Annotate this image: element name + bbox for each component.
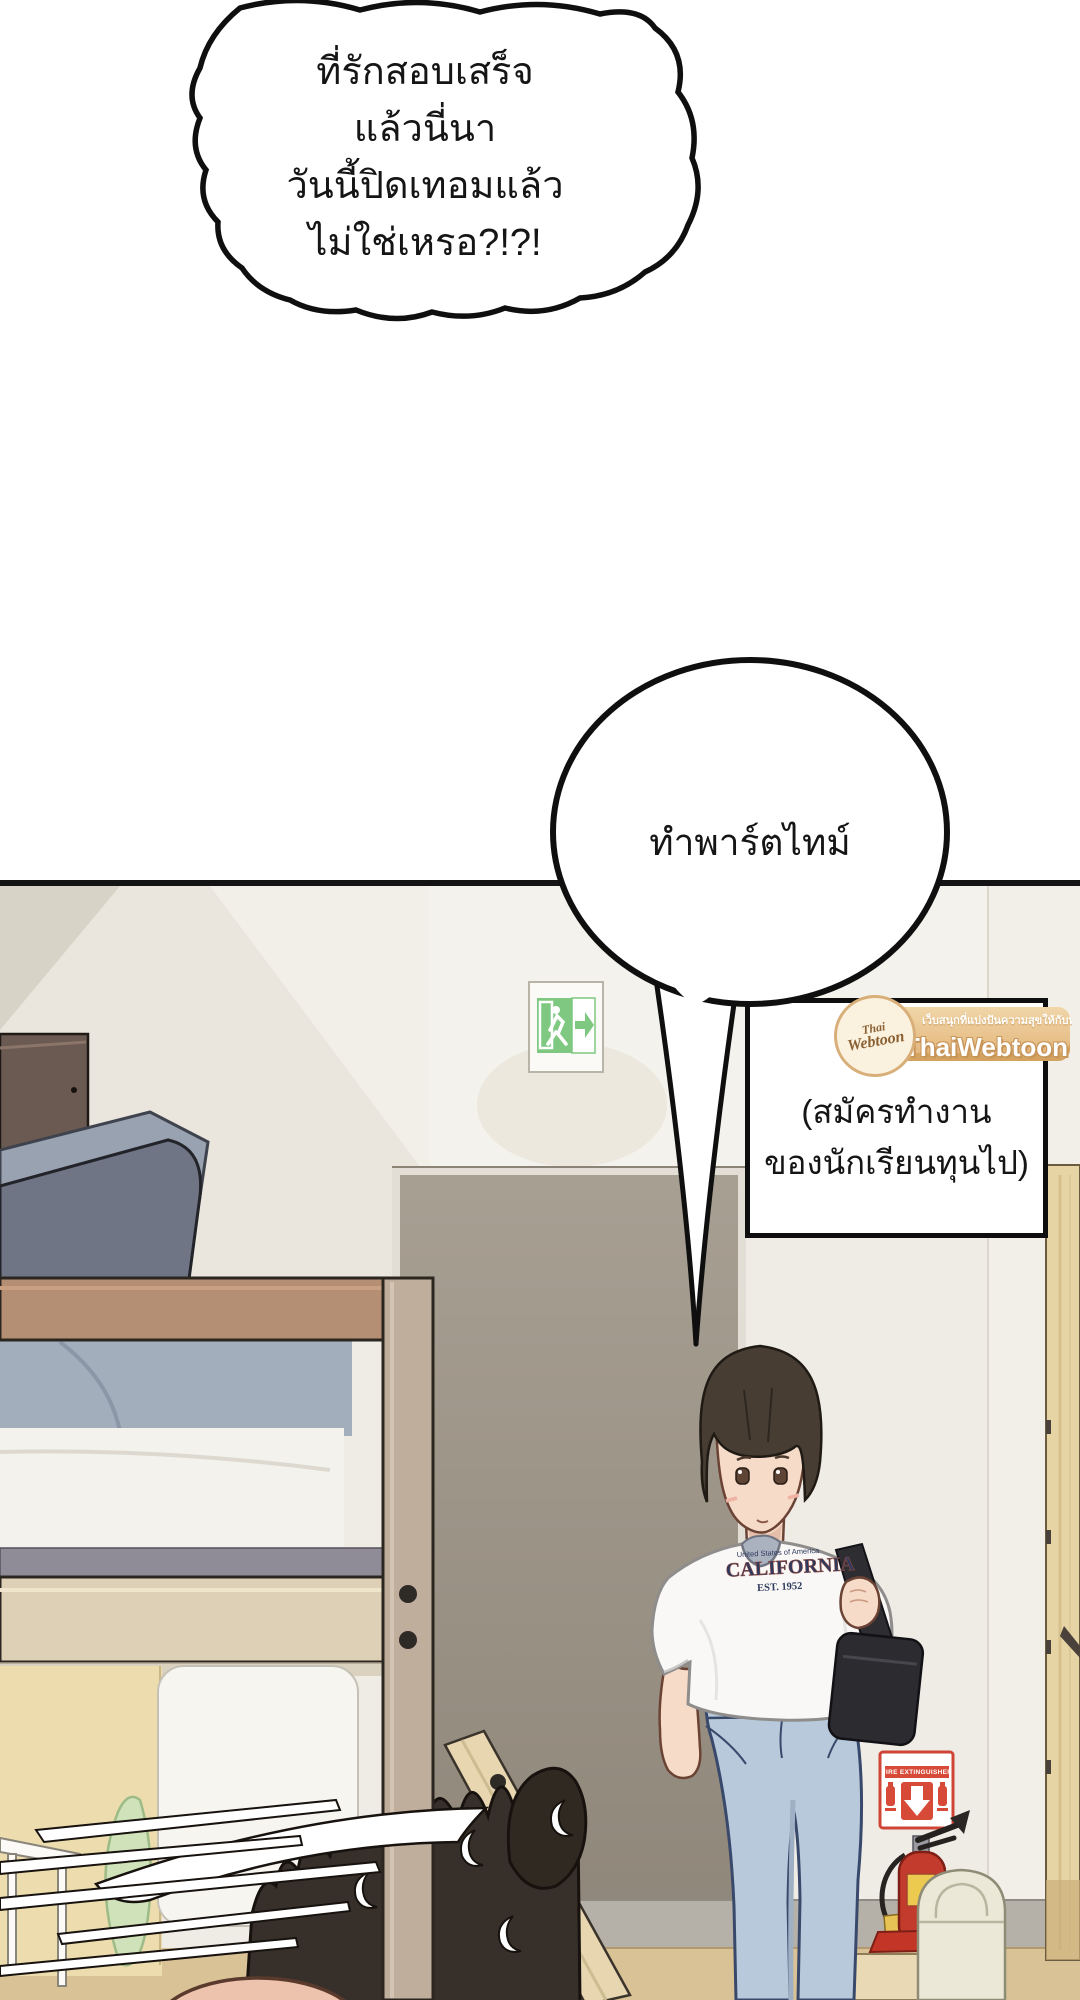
watermark-tagline: เว็บสนุกที่แบ่งปันความสุขให้กับทุกคน	[922, 1011, 1072, 1029]
watermark-brand: ThaiWebtoon	[904, 1032, 1068, 1063]
bubble-line: ทำพาร์ตไทม์	[649, 815, 851, 871]
bubble-line: ที่รักสอบเสร็จ	[185, 44, 665, 101]
bubble-line: วันนี้ปิดเทอมแล้ว	[185, 158, 665, 215]
round-bubble-text: ทำพาร์ตไทม์	[555, 806, 945, 880]
bubble-line: แล้วนี่นา	[185, 101, 665, 158]
webtoon-page: ที่รักสอบเสร็จ แล้วนี่นา วันนี้ปิดเทอมแล…	[0, 0, 1080, 2000]
round-bubble-tail	[652, 948, 742, 1344]
bubble-line: ไม่ใช่เหรอ?!?!	[185, 215, 665, 272]
top-bubble-text: ที่รักสอบเสร็จ แล้วนี่นา วันนี้ปิดเทอมแล…	[185, 30, 665, 285]
thaiwebtoon-watermark: เว็บสนุกที่แบ่งปันความสุขให้กับทุกคน Tha…	[834, 999, 1074, 1069]
watermark-logo-text: Webtoon	[846, 1029, 905, 1055]
